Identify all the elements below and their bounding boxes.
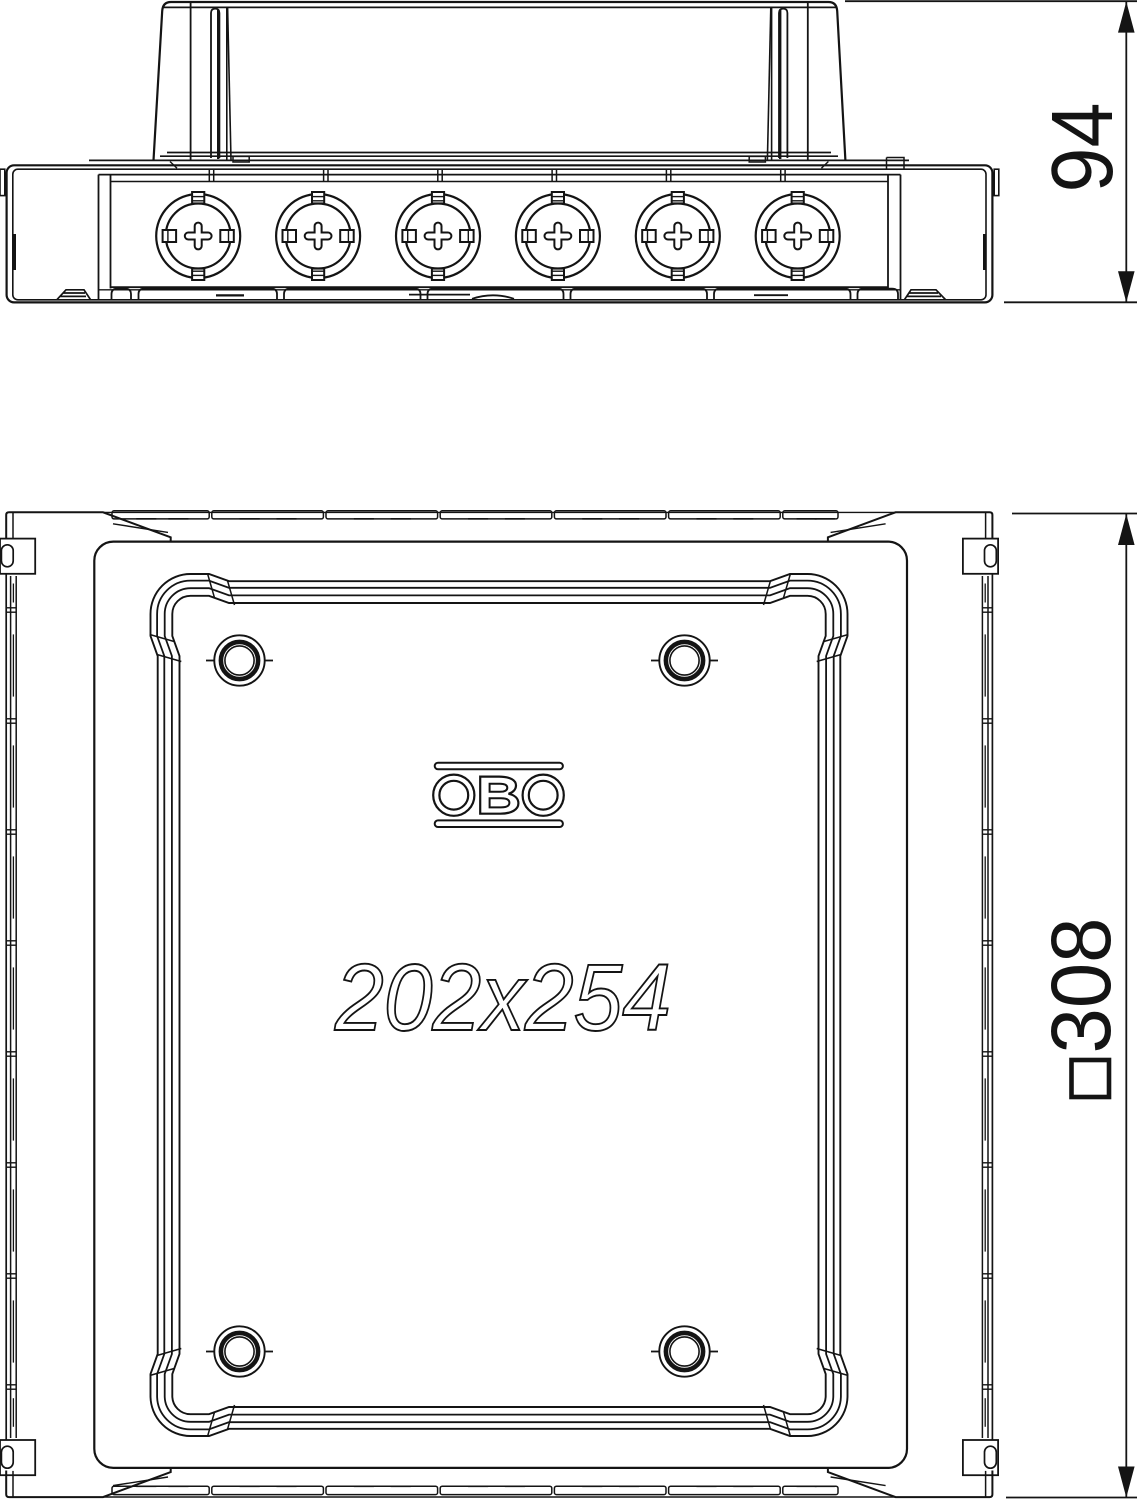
svg-text:308: 308 (1034, 918, 1128, 1054)
svg-text:94: 94 (1034, 103, 1131, 193)
svg-text:202x254: 202x254 (334, 945, 671, 1051)
